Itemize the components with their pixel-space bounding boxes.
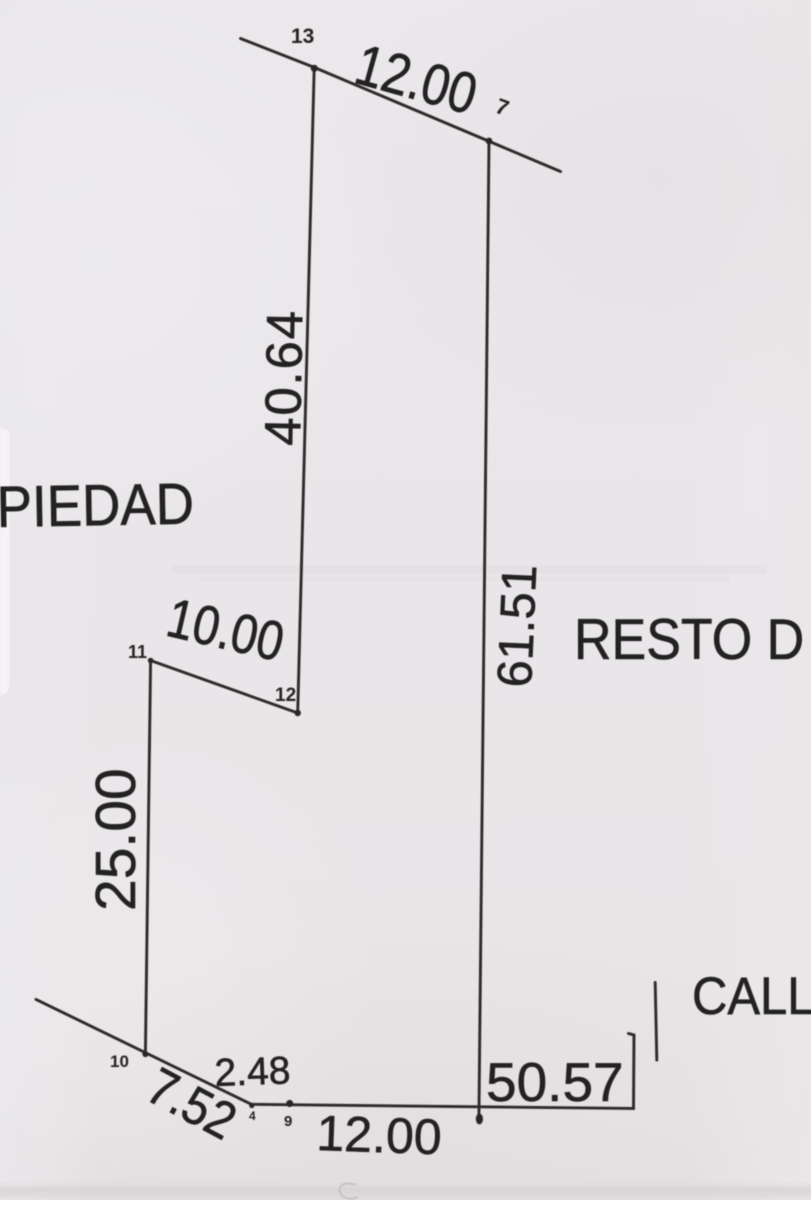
svg-text:PIEDAD: PIEDAD bbox=[0, 471, 194, 539]
svg-text:40.64: 40.64 bbox=[254, 309, 313, 447]
svg-text:11: 11 bbox=[128, 642, 147, 662]
svg-text:2.48: 2.48 bbox=[214, 1049, 291, 1095]
svg-text:13: 13 bbox=[291, 25, 314, 48]
svg-text:CALLE: CALLE bbox=[692, 966, 811, 1025]
svg-text:12: 12 bbox=[275, 685, 296, 706]
svg-text:9: 9 bbox=[284, 1113, 292, 1130]
svg-text:RESTO D: RESTO D bbox=[574, 608, 804, 672]
svg-text:12.00: 12.00 bbox=[316, 1105, 443, 1165]
svg-text:25.00: 25.00 bbox=[84, 768, 148, 911]
svg-text:50.57: 50.57 bbox=[486, 1051, 624, 1113]
svg-text:61.51: 61.51 bbox=[488, 564, 547, 689]
svg-text:10: 10 bbox=[110, 1052, 129, 1071]
svg-text:4: 4 bbox=[249, 1109, 256, 1123]
